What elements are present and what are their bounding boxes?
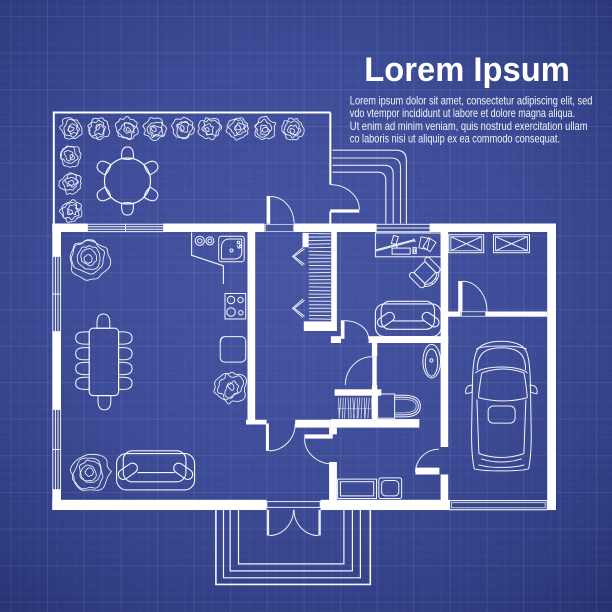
svg-text:co laboris nisi ut aliquip ex: co laboris nisi ut aliquip ex ea commodo…	[350, 132, 560, 146]
svg-text:Lorem Ipsum: Lorem Ipsum	[364, 51, 570, 89]
